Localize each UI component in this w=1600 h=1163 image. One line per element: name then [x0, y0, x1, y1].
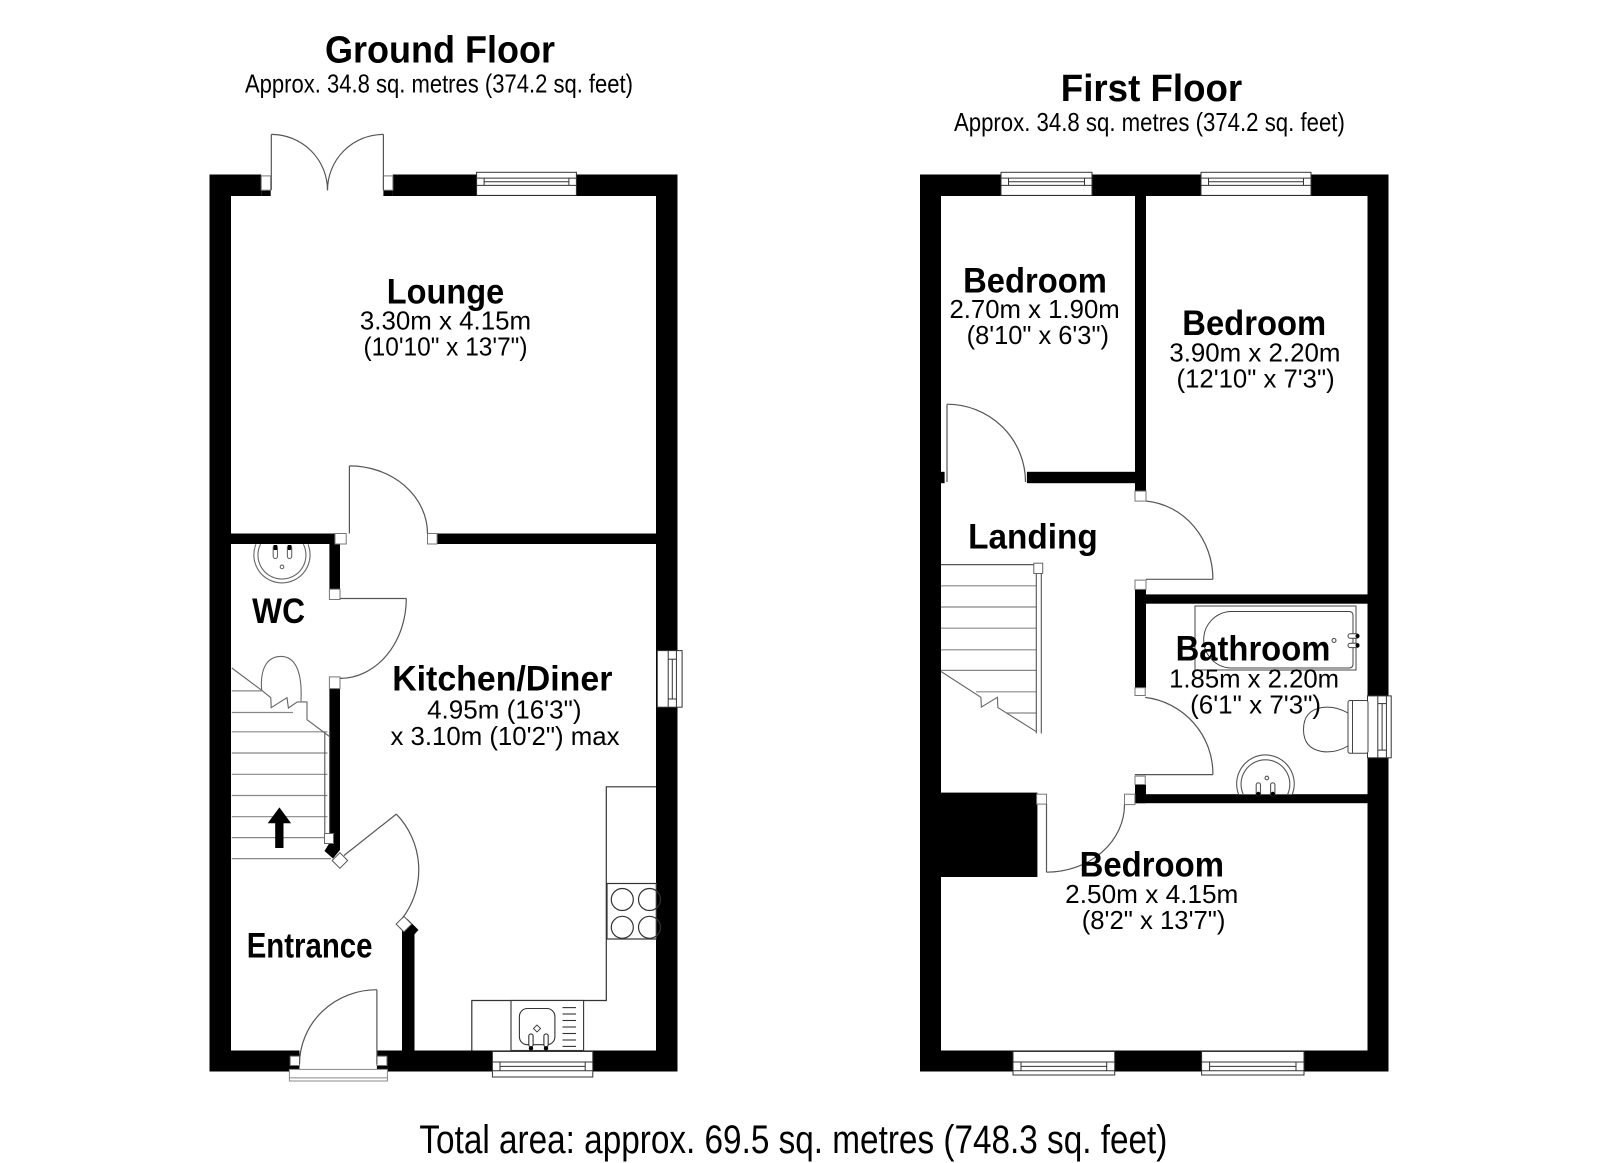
svg-text:(10'10" x 13'7"): (10'10" x 13'7") — [364, 332, 528, 362]
svg-text:x 3.10m (10'2") max: x 3.10m (10'2") max — [390, 721, 619, 751]
svg-text:(8'2" x 13'7"): (8'2" x 13'7") — [1082, 905, 1226, 935]
svg-text:First Floor: First Floor — [1061, 68, 1243, 110]
svg-text:Landing: Landing — [968, 518, 1098, 557]
svg-text:(12'10" x 7'3"): (12'10" x 7'3") — [1177, 364, 1335, 394]
svg-text:(6'1" x 7'3"): (6'1" x 7'3") — [1190, 690, 1321, 720]
svg-text:Entrance: Entrance — [247, 927, 373, 966]
svg-text:WC: WC — [252, 592, 305, 631]
svg-text:Kitchen/Diner: Kitchen/Diner — [392, 660, 613, 699]
svg-text:Ground Floor: Ground Floor — [325, 30, 555, 72]
svg-text:Total area: approx. 69.5 sq. m: Total area: approx. 69.5 sq. metres (748… — [419, 1118, 1167, 1162]
svg-text:4.95m (16'3"): 4.95m (16'3") — [427, 694, 581, 724]
svg-text:(8'10" x 6'3"): (8'10" x 6'3") — [967, 320, 1109, 350]
svg-text:Approx. 34.8 sq. metres (374.2: Approx. 34.8 sq. metres (374.2 sq. feet) — [245, 69, 633, 99]
svg-text:Approx. 34.8 sq. metres (374.2: Approx. 34.8 sq. metres (374.2 sq. feet) — [954, 107, 1345, 137]
